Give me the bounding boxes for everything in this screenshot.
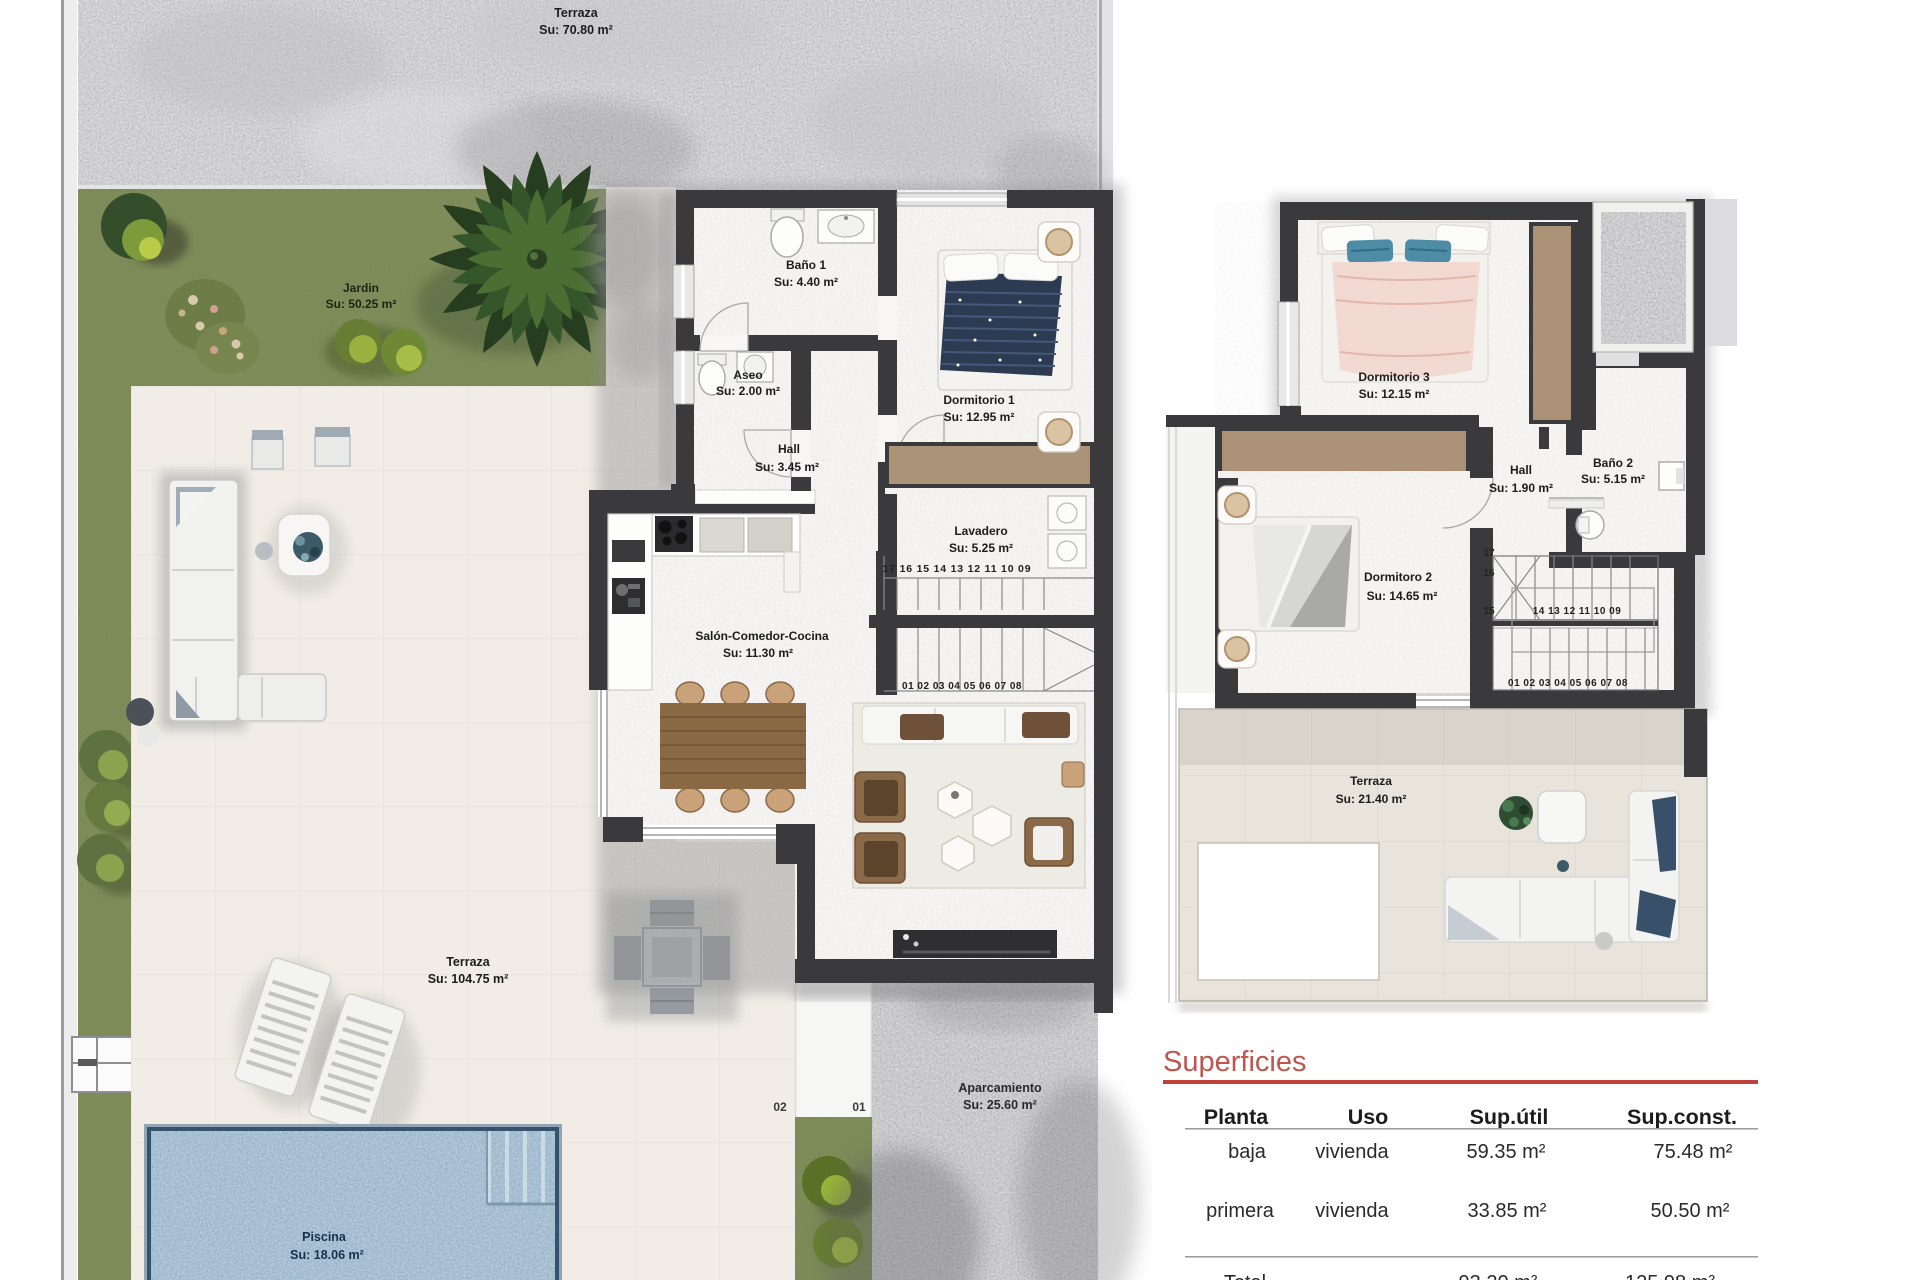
svg-text:Su: 21.40 m²: Su: 21.40 m² <box>1336 792 1407 806</box>
svg-text:Su: 2.00 m²: Su: 2.00 m² <box>716 384 780 398</box>
svg-text:93.20 m²: 93.20 m² <box>1459 1272 1538 1280</box>
svg-text:Planta: Planta <box>1204 1105 1270 1129</box>
svg-text:Aseo: Aseo <box>733 368 762 382</box>
svg-text:Sup.const.: Sup.const. <box>1627 1105 1737 1129</box>
svg-text:14 13 12 11 10 09: 14 13 12 11 10 09 <box>1533 606 1622 617</box>
svg-text:01 02 03 04 05 06 07 08: 01 02 03 04 05 06 07 08 <box>1508 678 1628 689</box>
svg-text:Salón-Comedor-Cocina: Salón-Comedor-Cocina <box>695 629 829 643</box>
svg-text:Su: 25.60 m²: Su: 25.60 m² <box>963 1098 1037 1112</box>
svg-text:Su: 104.75 m²: Su: 104.75 m² <box>428 972 509 986</box>
svg-text:Su: 70.80 m²: Su: 70.80 m² <box>539 23 613 37</box>
svg-text:50.50 m²: 50.50 m² <box>1651 1200 1730 1222</box>
svg-text:16: 16 <box>1483 568 1495 579</box>
svg-text:vivienda: vivienda <box>1315 1200 1389 1222</box>
svg-text:Su: 11.30 m²: Su: 11.30 m² <box>723 646 793 660</box>
svg-text:Su: 14.65 m²: Su: 14.65 m² <box>1367 589 1438 603</box>
svg-text:Terraza: Terraza <box>554 6 599 20</box>
svg-text:Su: 18.06 m²: Su: 18.06 m² <box>290 1248 364 1262</box>
svg-text:01: 01 <box>852 1100 866 1114</box>
svg-text:Dormitorio 3: Dormitorio 3 <box>1358 370 1430 384</box>
svg-text:17 16 15 14 13 12 11 10 09: 17 16 15 14 13 12 11 10 09 <box>883 563 1032 575</box>
svg-text:Su: 12.95 m²: Su: 12.95 m² <box>944 410 1015 424</box>
svg-text:baja: baja <box>1228 1141 1267 1163</box>
svg-text:Su: 3.45 m²: Su: 3.45 m² <box>755 460 819 474</box>
svg-text:Superficies: Superficies <box>1163 1046 1306 1078</box>
svg-text:15: 15 <box>1483 606 1495 617</box>
svg-text:Lavadero: Lavadero <box>954 524 1007 538</box>
svg-text:75.48 m²: 75.48 m² <box>1654 1141 1733 1163</box>
svg-text:59.35 m²: 59.35 m² <box>1467 1141 1546 1163</box>
svg-text:Su: 1.90 m²: Su: 1.90 m² <box>1489 481 1553 495</box>
svg-text:Piscina: Piscina <box>302 1230 347 1244</box>
svg-text:01 02 03 04 05 06 07 08: 01 02 03 04 05 06 07 08 <box>902 681 1022 692</box>
svg-text:Terraza: Terraza <box>1350 774 1392 788</box>
svg-text:Uso: Uso <box>1348 1105 1389 1129</box>
svg-text:02: 02 <box>773 1100 787 1114</box>
svg-text:vivienda: vivienda <box>1315 1141 1389 1163</box>
svg-text:Total: Total <box>1224 1272 1266 1280</box>
svg-text:Su: 4.40 m²: Su: 4.40 m² <box>774 275 838 289</box>
svg-text:Baño 2: Baño 2 <box>1593 456 1633 470</box>
svg-text:Su: 5.25 m²: Su: 5.25 m² <box>949 541 1013 555</box>
svg-text:Aparcamiento: Aparcamiento <box>958 1081 1042 1095</box>
svg-text:Su: 12.15 m²: Su: 12.15 m² <box>1359 387 1430 401</box>
svg-text:Hall: Hall <box>778 442 800 456</box>
svg-text:Baño 1: Baño 1 <box>786 258 826 272</box>
svg-text:Terraza: Terraza <box>446 955 491 969</box>
svg-text:17: 17 <box>1483 548 1495 559</box>
svg-text:125.98 m²: 125.98 m² <box>1625 1272 1715 1280</box>
svg-text:Dormitorio 1: Dormitorio 1 <box>943 393 1015 407</box>
svg-text:Su: 5.15 m²: Su: 5.15 m² <box>1581 472 1645 486</box>
svg-text:Jardin: Jardin <box>343 281 379 295</box>
svg-text:Sup.útil: Sup.útil <box>1470 1105 1549 1129</box>
svg-text:primera: primera <box>1206 1200 1275 1222</box>
svg-text:Su: 50.25 m²: Su: 50.25 m² <box>326 297 397 311</box>
svg-text:Hall: Hall <box>1510 463 1532 477</box>
svg-text:33.85 m²: 33.85 m² <box>1468 1200 1547 1222</box>
svg-text:Dormitoro 2: Dormitoro 2 <box>1364 570 1432 584</box>
